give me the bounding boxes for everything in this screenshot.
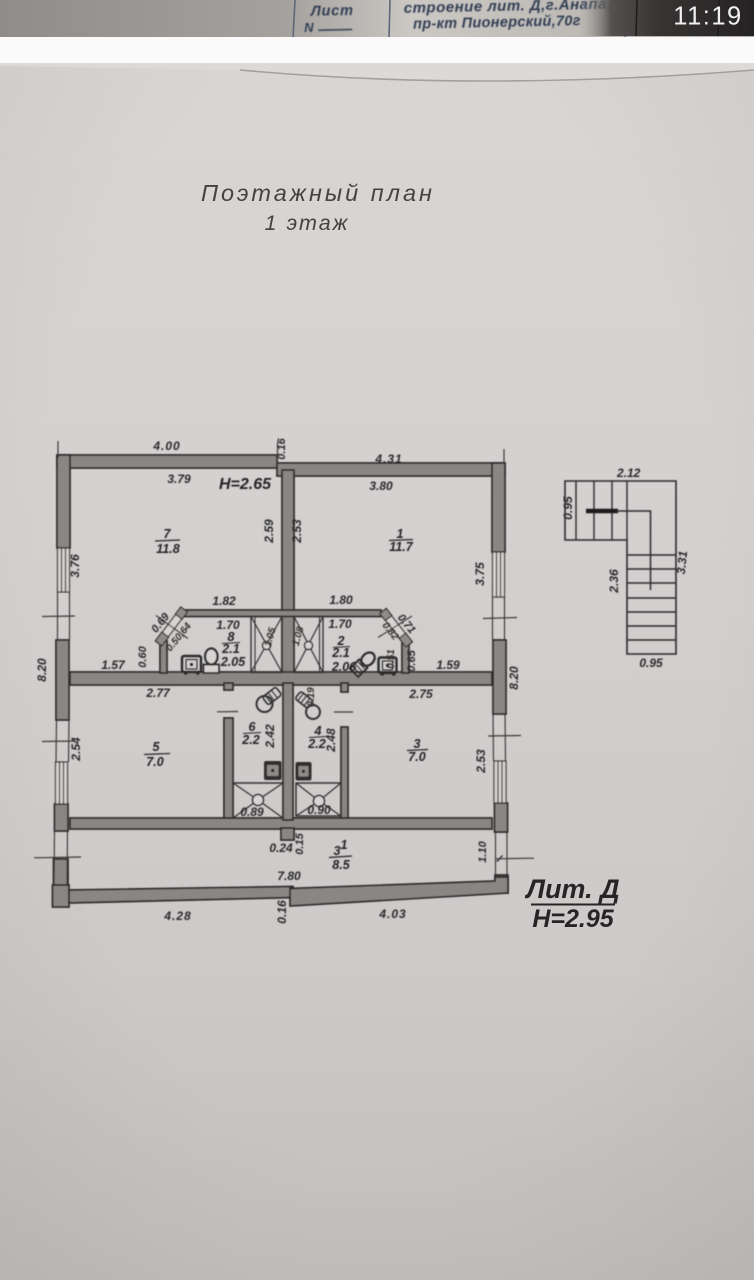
svg-text:N: N [304,20,314,35]
svg-text:8.20: 8.20 [35,658,49,682]
svg-text:4: 4 [314,724,322,738]
svg-text:1.80: 1.80 [329,593,353,607]
svg-text:2.53: 2.53 [290,519,304,544]
svg-text:0.65: 0.65 [406,649,418,671]
svg-text:4.28: 4.28 [163,909,191,923]
svg-text:1.70: 1.70 [328,617,352,631]
svg-text:2.12: 2.12 [616,466,641,480]
svg-text:0.95: 0.95 [561,496,575,520]
svg-text:2.42: 2.42 [263,724,277,749]
svg-text:1: 1 [341,838,348,852]
svg-text:4.31: 4.31 [374,452,402,466]
svg-text:2.48: 2.48 [324,728,338,753]
svg-text:3.76: 3.76 [68,554,82,578]
svg-text:1.10: 1.10 [477,840,489,862]
svg-text:2.77: 2.77 [145,686,171,700]
svg-text:0.16: 0.16 [275,900,289,924]
svg-text:1.82: 1.82 [212,594,236,608]
svg-text:0.24: 0.24 [269,841,293,855]
svg-text:0.51: 0.51 [386,649,397,669]
svg-text:1.59: 1.59 [436,658,460,672]
svg-text:2.36: 2.36 [607,569,621,594]
svg-text:Лист: Лист [310,3,354,20]
svg-text:2.75: 2.75 [408,687,433,701]
svg-text:Лит. Д: Лит. Д [524,874,619,904]
svg-text:11:19: 11:19 [673,3,742,31]
svg-text:0.89: 0.89 [240,805,264,819]
svg-text:7.0: 7.0 [408,750,425,764]
svg-text:2.54: 2.54 [69,737,83,762]
svg-text:5: 5 [153,740,161,754]
svg-text:2.2: 2.2 [241,733,259,747]
svg-text:1: 1 [397,527,404,541]
svg-text:2.06: 2.06 [331,660,357,674]
svg-text:1 этаж: 1 этаж [265,211,350,235]
svg-text:11.7: 11.7 [389,540,413,554]
svg-text:6: 6 [249,720,257,734]
svg-text:8.5: 8.5 [332,858,350,872]
svg-text:7: 7 [164,527,172,541]
svg-text:3.75: 3.75 [473,562,487,586]
svg-text:Н=2.95: Н=2.95 [532,905,614,933]
svg-text:2.05: 2.05 [220,655,246,669]
svg-text:11.8: 11.8 [156,542,179,556]
svg-text:4.00: 4.00 [152,439,180,453]
svg-text:2.2: 2.2 [307,737,325,751]
svg-text:3: 3 [334,844,341,858]
svg-text:0.60: 0.60 [137,645,149,667]
svg-text:3.80: 3.80 [369,479,393,493]
svg-text:7.80: 7.80 [277,869,301,883]
svg-text:0.90: 0.90 [307,803,331,817]
svg-text:2.1: 2.1 [331,646,349,660]
svg-text:Н=2.65: Н=2.65 [219,476,272,493]
svg-text:2.59: 2.59 [262,519,276,544]
svg-text:7.0: 7.0 [146,755,163,769]
svg-text:3.31: 3.31 [674,550,690,575]
svg-text:0.19: 0.19 [306,687,317,707]
svg-text:8.20: 8.20 [507,666,521,690]
svg-text:0.15: 0.15 [294,832,306,854]
svg-text:2.1: 2.1 [221,642,239,656]
svg-text:3: 3 [414,737,421,751]
svg-text:1.57: 1.57 [101,658,126,672]
svg-text:0.95: 0.95 [639,656,663,670]
svg-text:2.53: 2.53 [474,749,488,774]
svg-text:0.16: 0.16 [276,437,288,459]
svg-text:3.79: 3.79 [167,472,191,486]
svg-text:Поэтажный план: Поэтажный план [201,180,435,206]
svg-text:4.03: 4.03 [378,907,406,921]
